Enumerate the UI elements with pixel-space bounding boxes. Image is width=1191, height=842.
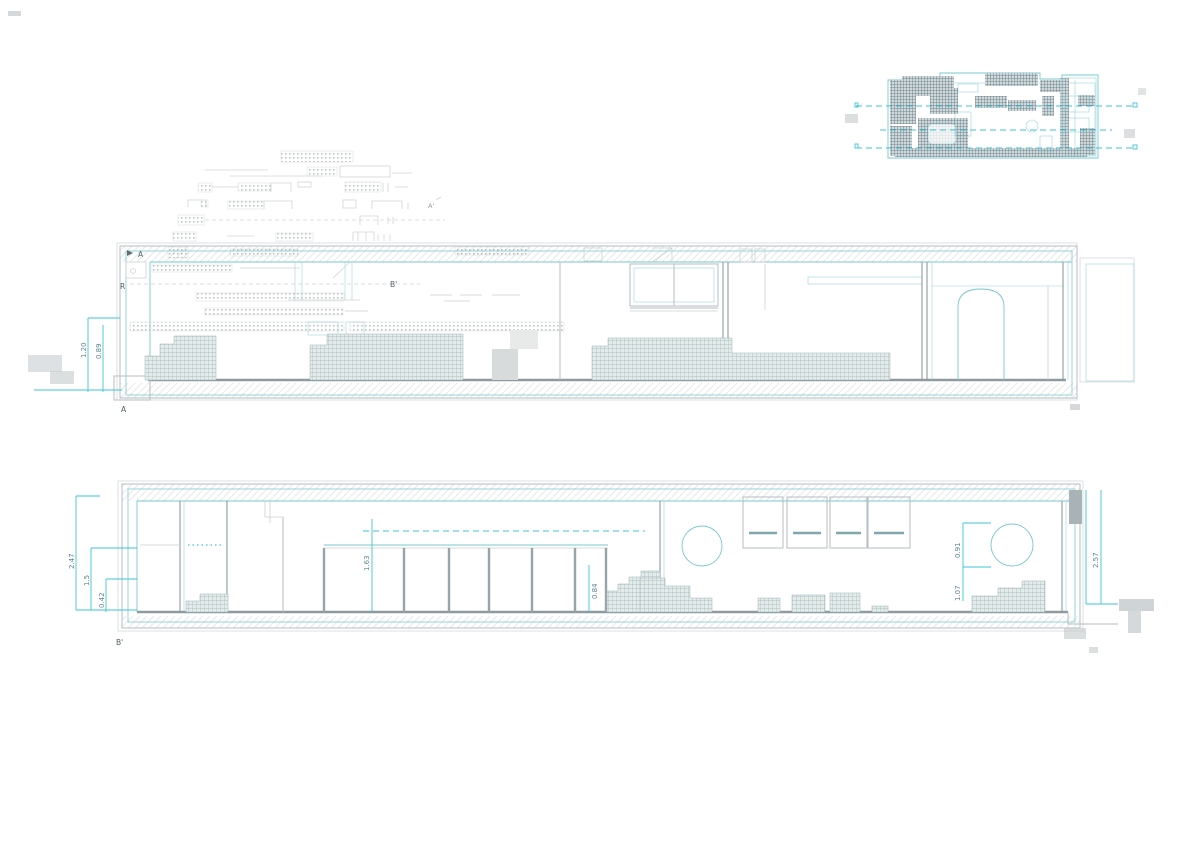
hatch-block xyxy=(830,593,860,612)
hatch-block xyxy=(872,606,888,612)
upper-section-drawing: A R B' A 1.20 0.89 xyxy=(34,243,1134,414)
cabinet-unit xyxy=(743,497,783,548)
lower-marker-bottom-left: B' xyxy=(116,638,123,647)
hatch-steps xyxy=(640,578,712,612)
upper-right-extension xyxy=(1080,258,1134,382)
upper-beam xyxy=(808,277,922,284)
section-marker-tick xyxy=(1133,103,1137,107)
dim-text: 0.89 xyxy=(95,343,103,359)
dim-text: 0.91 xyxy=(954,542,962,558)
hatch-steps xyxy=(972,581,1045,612)
upper-marker-top-left: A xyxy=(138,250,144,259)
architectural-cad-canvas: A' xyxy=(0,0,1191,842)
section-marker-tick xyxy=(1133,145,1137,149)
cabinet-unit xyxy=(868,497,910,548)
upper-marker-bottom-left: A xyxy=(121,405,127,414)
hatch-steps xyxy=(186,594,228,612)
cabinet-unit xyxy=(830,497,867,548)
hatch-block xyxy=(792,595,825,612)
upper-arched-opening xyxy=(958,289,1004,380)
dim-text: 2.47 xyxy=(68,553,76,569)
lower-hatch-blocks: 0.84 xyxy=(186,565,1045,612)
dim-text: 0.42 xyxy=(98,592,106,608)
lower-right-dimensions: 0.91 1.07 xyxy=(954,523,991,601)
key-plan xyxy=(855,73,1137,158)
lower-left-dimensions: 2.47 1.5 0.42 xyxy=(68,496,137,612)
upper-gray-block-small xyxy=(510,330,538,349)
lower-section-drawing: 1.63 0.84 xyxy=(68,481,1154,653)
faint-annotation-overlay: A' xyxy=(173,151,445,241)
hatch-block xyxy=(592,338,890,380)
upper-bottom-hatch-band xyxy=(120,383,1077,398)
dim-text: 0.84 xyxy=(591,583,599,599)
upper-marker-mid: B' xyxy=(390,280,397,289)
upper-gray-block xyxy=(492,349,518,380)
dim-text: 1.63 xyxy=(363,555,371,571)
cabinet-unit xyxy=(787,497,827,548)
lower-top-hatch-band xyxy=(122,484,1080,501)
hatch-block xyxy=(310,334,463,380)
key-plan-walls xyxy=(890,73,1095,157)
hatch-block xyxy=(758,598,780,612)
dim-text: 2.57 xyxy=(1092,552,1100,568)
wall-cabinets xyxy=(743,497,910,548)
dim-text: 1.20 xyxy=(80,342,88,358)
upper-marker-left: R xyxy=(120,282,125,291)
lower-outer-boundary xyxy=(122,484,1080,628)
round-mirror-left xyxy=(682,526,722,566)
dim-text: 1.07 xyxy=(954,585,962,601)
section-marker-tick xyxy=(855,144,858,148)
round-mirror-right xyxy=(991,524,1033,566)
drawing-sheet: A' xyxy=(0,0,1191,842)
hatch-block xyxy=(145,336,216,380)
lower-corner-block xyxy=(1069,490,1082,524)
overlay-section-label: A' xyxy=(428,202,434,210)
dim-text: 1.5 xyxy=(83,575,91,586)
